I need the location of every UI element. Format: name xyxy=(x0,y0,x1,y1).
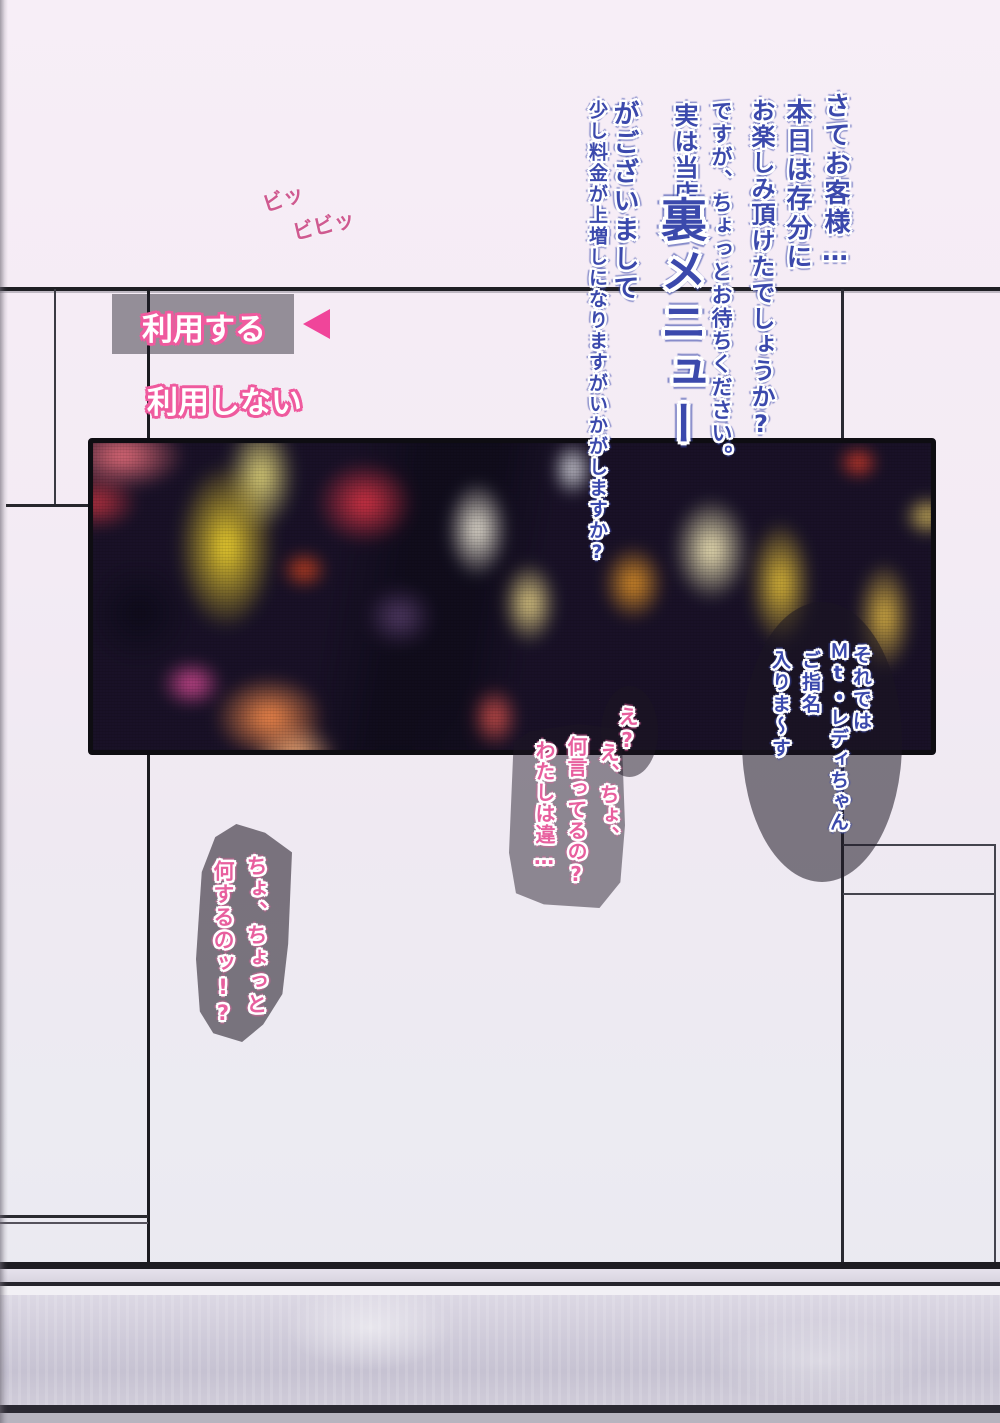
sfx-beep-1: ビッ xyxy=(258,177,307,219)
skirting-line-1 xyxy=(0,1262,1000,1269)
narration-col-7: がございまして xyxy=(611,100,637,303)
sfx-beep-2: ビビッ xyxy=(289,203,357,246)
narration-col-4: ですが、ちょっとお待ちください。 xyxy=(710,100,731,468)
protest-col-3: わたしは違… xyxy=(534,740,554,870)
page-scan-edge xyxy=(0,0,8,1423)
speech-bubble-announce xyxy=(742,602,902,882)
secret-menu-title: 裏メニュー xyxy=(658,196,704,451)
announce-col-3: ご指名 xyxy=(800,650,819,716)
skirting-line-3 xyxy=(0,1405,1000,1413)
menu-option-not-use-label[interactable]: 利用しない xyxy=(147,377,302,422)
manga-page: さてお客様… 本日は存分に お楽しみ頂けたでしょうか? ですが、ちょっとお待ちく… xyxy=(0,0,1000,1423)
wall-line-vertical-far-right xyxy=(994,845,996,1263)
menu-cursor-triangle-icon xyxy=(303,309,330,339)
grab-col-2: 何するのッ!? xyxy=(212,860,233,1027)
menu-option-use-label[interactable]: 利用する xyxy=(142,304,266,349)
protest-col-1: え、ちょ、 xyxy=(598,742,618,847)
wall-line-vertical-left-thin xyxy=(54,289,56,507)
grab-col-1: ちょ、ちょっと xyxy=(245,855,266,1016)
announce-col-1: それでは xyxy=(851,645,870,733)
wall-line-horizontal-top xyxy=(0,287,1000,291)
skirting-gap xyxy=(0,1269,1000,1282)
wall-line-vertical-main xyxy=(147,289,150,1263)
wall-line-horizontal-right-2 xyxy=(843,893,996,895)
skirting-metal-panel xyxy=(0,1295,1000,1405)
narration-col-1: さてお客様… xyxy=(822,92,848,270)
wall-line-bottom-left-2 xyxy=(0,1222,148,1224)
announce-col-2: Ｍt・レディちゃん xyxy=(828,641,847,833)
wall-line-horizontal-left xyxy=(6,504,90,507)
narration-col-8: 少し料金が上増しになりますがいかがしますか? xyxy=(587,100,606,565)
protest-col-2: 何言ってるの? xyxy=(566,736,586,887)
narration-col-2: 本日は存分に xyxy=(784,98,810,272)
announce-col-4: 入りま〜す xyxy=(770,650,789,760)
skirting-highlight xyxy=(0,1286,1000,1295)
narration-col-3: お楽しみ頂けたでしょうか? xyxy=(749,98,773,440)
wall-line-bottom-left-1 xyxy=(0,1215,148,1218)
floor-strip xyxy=(0,1413,1000,1423)
eh-text: え? xyxy=(617,706,637,754)
